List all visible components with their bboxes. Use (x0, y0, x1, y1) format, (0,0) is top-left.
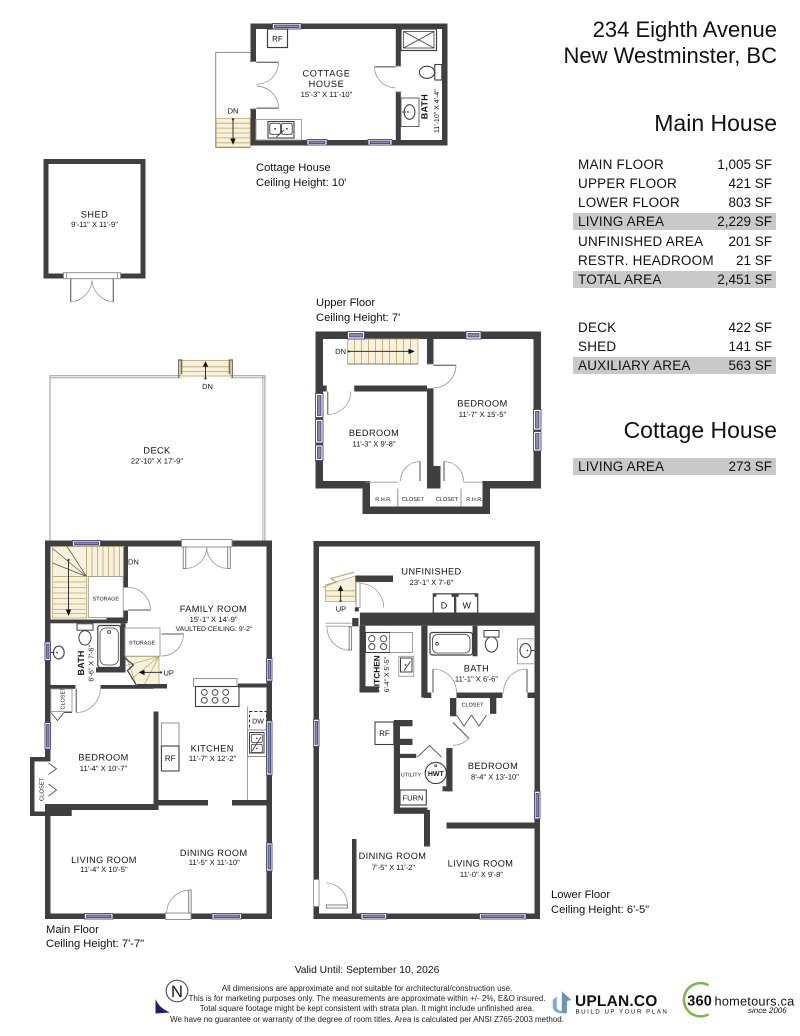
svg-text:LIVING ROOM: LIVING ROOM (71, 855, 137, 865)
svg-text:CLOSET: CLOSET (436, 497, 459, 503)
svg-text:15'-1" X 14'-9": 15'-1" X 14'-9" (190, 615, 238, 624)
svg-text:UNFINISHED: UNFINISHED (401, 567, 461, 577)
svg-text:CLOSET: CLOSET (61, 687, 67, 710)
svg-text:BEDROOM: BEDROOM (349, 428, 399, 438)
svg-text:15'-3" X 11'-10": 15'-3" X 11'-10" (301, 90, 353, 99)
svg-text:DN: DN (128, 558, 139, 567)
svg-text:CLOSET: CLOSET (402, 497, 425, 503)
svg-text:BEDROOM: BEDROOM (457, 399, 507, 409)
svg-text:DINING ROOM: DINING ROOM (359, 851, 427, 861)
svg-text:W: W (462, 600, 471, 610)
svg-text:11'-4" X 10'-5": 11'-4" X 10'-5" (80, 865, 128, 874)
svg-text:11'-1" X 6'-6": 11'-1" X 6'-6" (455, 675, 498, 684)
svg-text:RF: RF (379, 729, 390, 738)
svg-text:7'-5" X 11'-2": 7'-5" X 11'-2" (372, 863, 415, 872)
svg-text:8'-4" X 13'-10": 8'-4" X 13'-10" (471, 773, 519, 782)
svg-text:FURN: FURN (403, 793, 424, 802)
svg-text:9'-11" X 11'-9": 9'-11" X 11'-9" (71, 220, 118, 229)
svg-text:23'-1" X 7'-6": 23'-1" X 7'-6" (410, 578, 454, 587)
svg-text:11'-0" X 9'-8": 11'-0" X 9'-8" (460, 870, 503, 879)
svg-text:CLOSET: CLOSET (461, 703, 484, 709)
svg-text:11'-7" X 12'-2": 11'-7" X 12'-2" (189, 754, 237, 763)
svg-text:DINING ROOM: DINING ROOM (180, 848, 248, 858)
svg-text:LIVING ROOM: LIVING ROOM (448, 859, 514, 869)
svg-text:11'-5" X 11'-10": 11'-5" X 11'-10" (189, 858, 240, 867)
svg-text:11'-10" X 4'-4": 11'-10" X 4'-4" (434, 89, 441, 133)
svg-text:DN: DN (335, 347, 346, 356)
svg-text:6'-4" X 5'-5": 6'-4" X 5'-5" (384, 656, 391, 692)
svg-text:UTILITY: UTILITY (401, 772, 422, 778)
svg-text:R.H.R.: R.H.R. (375, 497, 392, 503)
svg-text:11'-4" X 10'-7": 11'-4" X 10'-7" (80, 764, 128, 773)
svg-text:BEDROOM: BEDROOM (78, 753, 128, 763)
svg-text:DW: DW (252, 719, 264, 726)
svg-text:BATH: BATH (464, 664, 489, 674)
svg-text:HWT: HWT (428, 771, 445, 778)
svg-text:STORAGE: STORAGE (129, 641, 156, 647)
svg-text:UPLAN.CO: UPLAN.CO (575, 993, 658, 1010)
svg-text:DN: DN (228, 107, 239, 116)
svg-text:BEDROOM: BEDROOM (468, 761, 518, 771)
svg-text:11'-3" X 9'-8": 11'-3" X 9'-8" (352, 440, 395, 449)
svg-text:FAMILY ROOM: FAMILY ROOM (180, 604, 247, 614)
svg-text:11'-7" X 15'-5": 11'-7" X 15'-5" (459, 410, 507, 419)
svg-text:360: 360 (687, 994, 712, 1010)
svg-text:DECK: DECK (143, 446, 171, 456)
svg-text:RF: RF (165, 754, 176, 763)
svg-text:DN: DN (202, 382, 213, 391)
svg-text:RF: RF (272, 35, 283, 44)
svg-text:BUILD UP YOUR PLAN: BUILD UP YOUR PLAN (576, 1009, 669, 1016)
svg-text:R.H.R.: R.H.R. (466, 497, 483, 503)
svg-text:BATH: BATH (420, 94, 430, 119)
svg-text:UP: UP (336, 605, 346, 614)
svg-text:D: D (441, 600, 448, 610)
svg-text:BATH: BATH (76, 650, 86, 675)
svg-text:KITCHEN: KITCHEN (191, 744, 234, 754)
svg-text:HOUSE: HOUSE (309, 79, 345, 89)
svg-text:COTTAGE: COTTAGE (303, 69, 351, 79)
svg-text:UP: UP (164, 668, 174, 677)
svg-text:since 2006: since 2006 (748, 1006, 787, 1015)
svg-text:CLOSET: CLOSET (39, 777, 46, 801)
svg-text:N: N (171, 983, 183, 1001)
svg-text:22'-10" X 17'-9": 22'-10" X 17'-9" (131, 457, 184, 466)
svg-text:STORAGE: STORAGE (93, 597, 120, 603)
svg-text:VAULTED CEILING: 9'-2": VAULTED CEILING: 9'-2" (176, 626, 253, 633)
svg-text:SHED: SHED (81, 210, 109, 220)
svg-text:6'-6" X 7'-6": 6'-6" X 7'-6" (89, 645, 96, 682)
